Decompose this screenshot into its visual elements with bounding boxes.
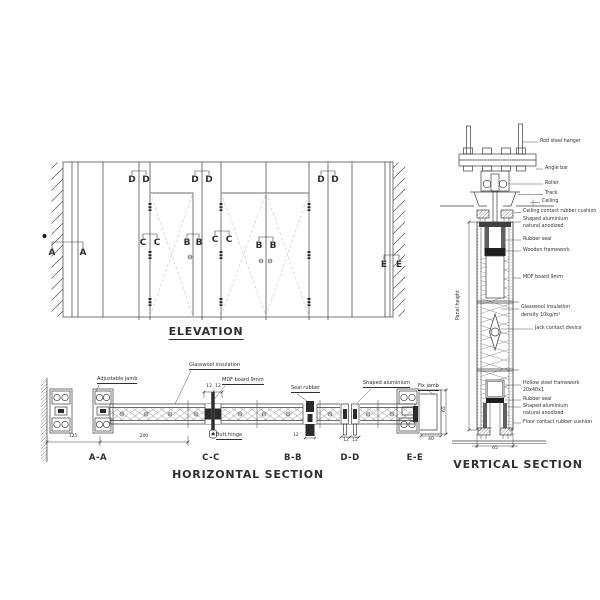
hollow-steel-label-2: 20x40x1 [523,388,544,393]
floor-cushion-left [478,428,490,435]
door-latch-symbols [188,255,272,263]
marker-b1-left: B [184,239,191,248]
adjustable-jamb-label: Adjustable jamb [97,377,137,384]
reference-dot [42,234,46,238]
marker-c1-right: C [154,239,161,248]
dim-dd-12-left: 12 [343,439,349,444]
floor-cushion-label: Floor contact rubber cushion [523,420,592,425]
aluminium-joint-detail [340,402,361,438]
ceiling-cushion-left [477,210,489,218]
bottom-rubber-seal [486,398,504,403]
shaped-aluminium-top-label-2: natural anodized [523,224,563,229]
ceiling-cushion-right [501,210,513,218]
marker-c2-left: C [212,236,219,245]
shaped-aluminium-label: Shaped aluminium [363,381,410,388]
seal-rubber-label: Seal rubber [291,386,320,393]
wall-hatch [41,380,47,461]
dim-ee-40: 40 [428,438,434,443]
dim-200: 200 [140,435,149,440]
marker-b1-right: B [196,239,203,248]
mdf-board-vs-label: MDF board 9mm [523,275,563,280]
top-rubber-seal [485,248,506,256]
glasswool-label-2: density 10kg/m³ [521,313,560,318]
section-label-dd: D-D [340,454,359,463]
wooden-framework-label: Wooden framework [523,248,570,253]
track-label: Track [545,191,558,196]
wooden-framework [486,256,504,298]
angle-bar-label: Angle bar [545,166,568,171]
marker-d3-left: D [317,176,324,185]
drawing-canvas [0,0,600,600]
dim-cc-12-left: 12 [206,385,212,390]
mdf-board-label: MDF board 9mm [222,378,264,385]
vertical-section-title: VERTICAL SECTION [453,459,583,471]
marker-d3-right: D [331,176,338,185]
butt-hinge-label: Butt hinge [216,433,242,440]
hollow-steel-label-1: Hollow steel framework [523,381,580,386]
elevation-title: ELEVATION [169,326,244,340]
blueprint-canvas: ELEVATION D D D D D D C C C C B B B B A … [0,0,600,600]
shaped-aluminium-bottom-label-2: natural anodized [523,411,563,416]
horizontal-section-title: HORIZONTAL SECTION [172,469,324,481]
marker-b2-right: B [270,242,277,251]
marker-c2-right: C [226,236,233,245]
panel-body [477,222,519,430]
dim-vs-65: 65 [492,447,498,452]
rubber-seal-top-label: Rubber seal [523,237,551,242]
marker-a-left: A [49,249,56,258]
right-wall-hatch [394,163,406,317]
marker-e-left: E [381,261,387,270]
marker-d1-left: D [128,176,135,185]
fix-jamb-label: Fix jamb [418,384,439,391]
dim-bb-12: 12 [293,434,299,439]
floor-cushion-right [500,428,512,435]
marker-c1-left: C [140,239,147,248]
marker-d1-right: D [142,176,149,185]
butt-hinge-detail [203,391,224,438]
shaped-aluminium-bottom-label-1: Shaped aluminium [523,404,568,409]
section-label-bb: B-B [284,454,302,463]
roller-assembly [481,171,509,191]
door-swing-lines [150,193,309,316]
marker-d2-left: D [191,176,198,185]
section-label-aa: A-A [89,454,107,463]
marker-e-right: E [396,261,402,270]
elevation-drawing [42,162,405,320]
section-label-ee: E-E [407,454,424,463]
left-wall-hatch [52,163,64,317]
marker-d2-right: D [205,176,212,185]
panel-height-label: Panel height [456,290,461,320]
ceiling-label: Ceiling [542,199,558,204]
rubber-seal-bottom-label: Rubber seal [523,397,551,402]
hinge-marks [150,203,309,306]
marker-b2-left: B [256,242,263,251]
roller-label: Roller [545,181,559,186]
hollow-steel-framework [486,380,504,398]
dim-dd-12-right: 12 [352,439,358,444]
section-label-cc: C-C [202,454,220,463]
marker-a-right: A [80,249,87,258]
track-profile [470,192,520,206]
seal-rubber-detail [303,400,317,439]
section-marker-brackets [52,171,399,260]
glasswool-label-1: Glasswool insulation [521,305,570,310]
dim-ee-65: 65 [443,406,448,412]
glasswool-insulation-label: Glasswool insulation [189,363,240,370]
dim-125: 125 [69,435,78,440]
suspension-assembly [459,124,536,222]
wall-jamb-detail [50,389,72,433]
ceiling-cushion-label: Ceiling contact rubber cushion [523,209,596,214]
jack-contact-label: Jack contact device [535,326,582,331]
rod-steel-hanger-label: Rod steel hanger [540,139,581,144]
dim-cc-12-right: 12 [215,385,221,390]
shaped-aluminium-top-label-1: Shaped aluminium [523,217,568,222]
